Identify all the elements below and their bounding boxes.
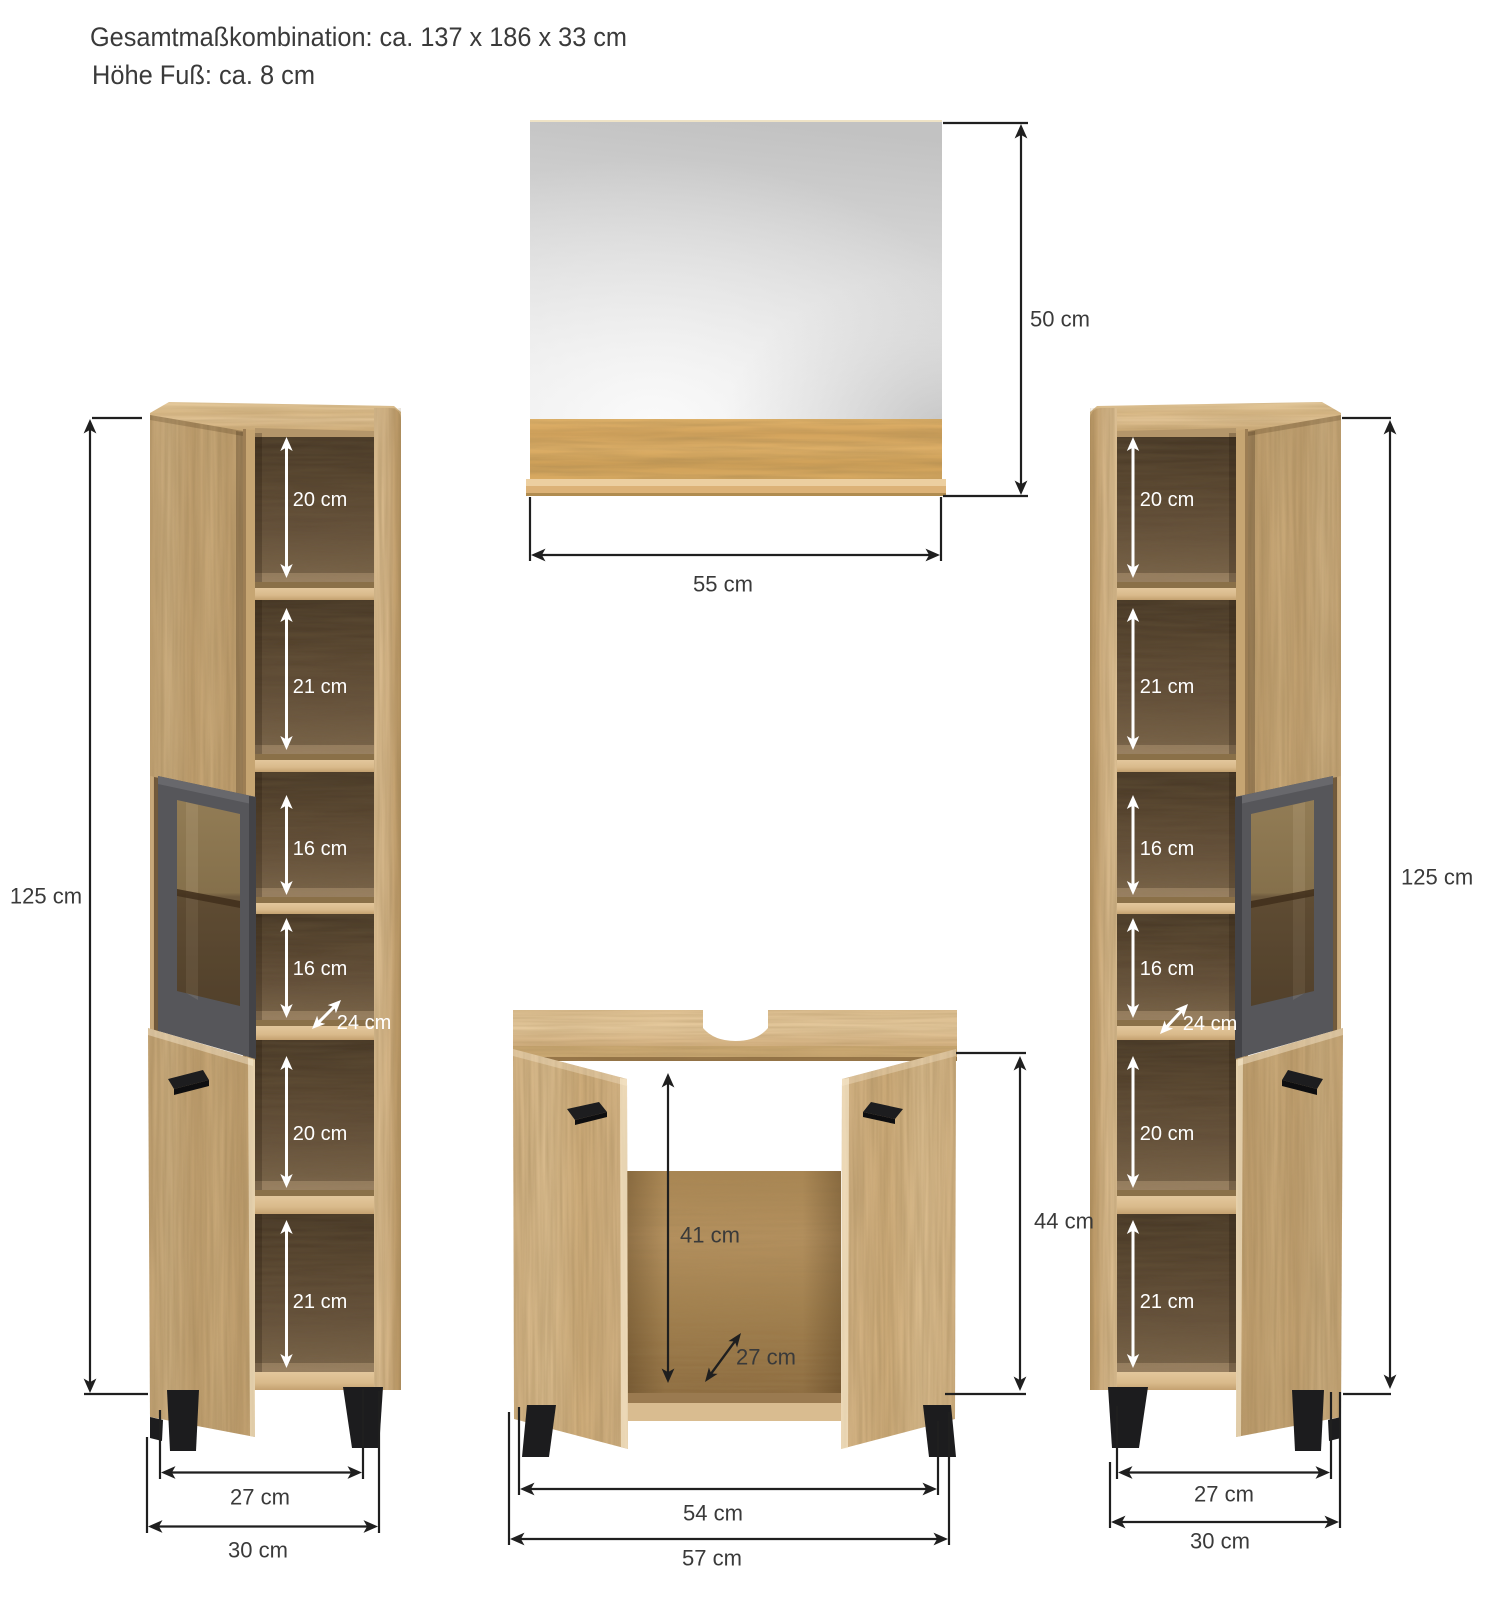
svg-text:50 cm: 50 cm bbox=[1030, 307, 1090, 332]
svg-text:Gesamtmaßkombination: ca. 137: Gesamtmaßkombination: ca. 137 x 186 x 33… bbox=[90, 22, 627, 52]
svg-text:16 cm: 16 cm bbox=[293, 838, 347, 860]
svg-text:44 cm: 44 cm bbox=[1034, 1209, 1094, 1234]
svg-text:16 cm: 16 cm bbox=[293, 958, 347, 980]
svg-text:27 cm: 27 cm bbox=[230, 1485, 290, 1510]
svg-text:30 cm: 30 cm bbox=[228, 1538, 288, 1563]
svg-text:30 cm: 30 cm bbox=[1190, 1529, 1250, 1554]
svg-text:20 cm: 20 cm bbox=[1140, 489, 1194, 511]
svg-text:125 cm: 125 cm bbox=[1401, 865, 1473, 890]
svg-text:16 cm: 16 cm bbox=[1140, 958, 1194, 980]
svg-text:16 cm: 16 cm bbox=[1140, 838, 1194, 860]
svg-text:20 cm: 20 cm bbox=[293, 489, 347, 511]
svg-text:21 cm: 21 cm bbox=[1140, 676, 1194, 698]
svg-text:21 cm: 21 cm bbox=[1140, 1291, 1194, 1313]
svg-text:41 cm: 41 cm bbox=[680, 1223, 740, 1248]
svg-text:27 cm: 27 cm bbox=[1194, 1482, 1254, 1507]
svg-text:27 cm: 27 cm bbox=[736, 1345, 796, 1370]
svg-text:Höhe Fuß: ca. 8 cm: Höhe Fuß: ca. 8 cm bbox=[92, 60, 315, 90]
svg-text:21 cm: 21 cm bbox=[293, 1291, 347, 1313]
svg-text:20 cm: 20 cm bbox=[1140, 1123, 1194, 1145]
svg-text:54 cm: 54 cm bbox=[683, 1501, 743, 1526]
svg-text:20 cm: 20 cm bbox=[293, 1123, 347, 1145]
svg-text:21 cm: 21 cm bbox=[293, 676, 347, 698]
svg-text:24 cm: 24 cm bbox=[1183, 1013, 1237, 1035]
svg-text:125 cm: 125 cm bbox=[10, 884, 82, 909]
svg-text:57 cm: 57 cm bbox=[682, 1546, 742, 1571]
svg-text:55 cm: 55 cm bbox=[693, 572, 753, 597]
svg-text:24 cm: 24 cm bbox=[337, 1012, 391, 1034]
